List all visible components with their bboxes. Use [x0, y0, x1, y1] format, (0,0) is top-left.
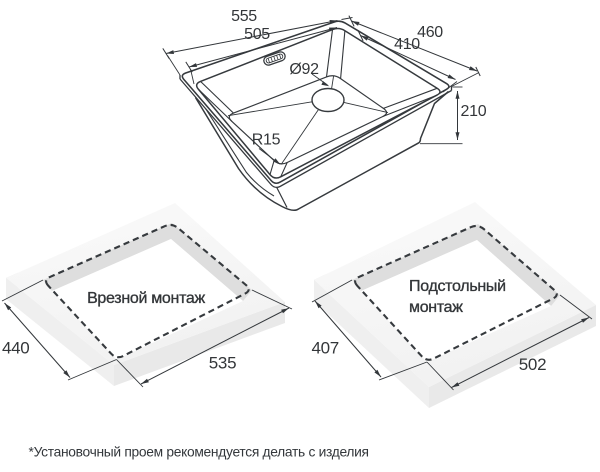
svg-text:Врезной монтаж: Врезной монтаж: [87, 290, 205, 307]
svg-text:460: 460: [417, 24, 443, 41]
svg-text:555: 555: [231, 8, 257, 25]
svg-text:407: 407: [311, 339, 338, 358]
svg-text:*Установочный проем рекомендуе: *Установочный проем рекомендуется делать…: [29, 445, 369, 460]
svg-text:535: 535: [209, 354, 236, 373]
svg-text:R15: R15: [252, 132, 281, 149]
svg-text:440: 440: [2, 339, 29, 358]
svg-text:505: 505: [244, 26, 270, 43]
svg-text:410: 410: [394, 36, 420, 53]
svg-text:502: 502: [519, 355, 546, 374]
svg-text:монтаж: монтаж: [409, 299, 463, 316]
svg-text:210: 210: [461, 103, 487, 120]
svg-text:Подстольный: Подстольный: [409, 278, 506, 295]
